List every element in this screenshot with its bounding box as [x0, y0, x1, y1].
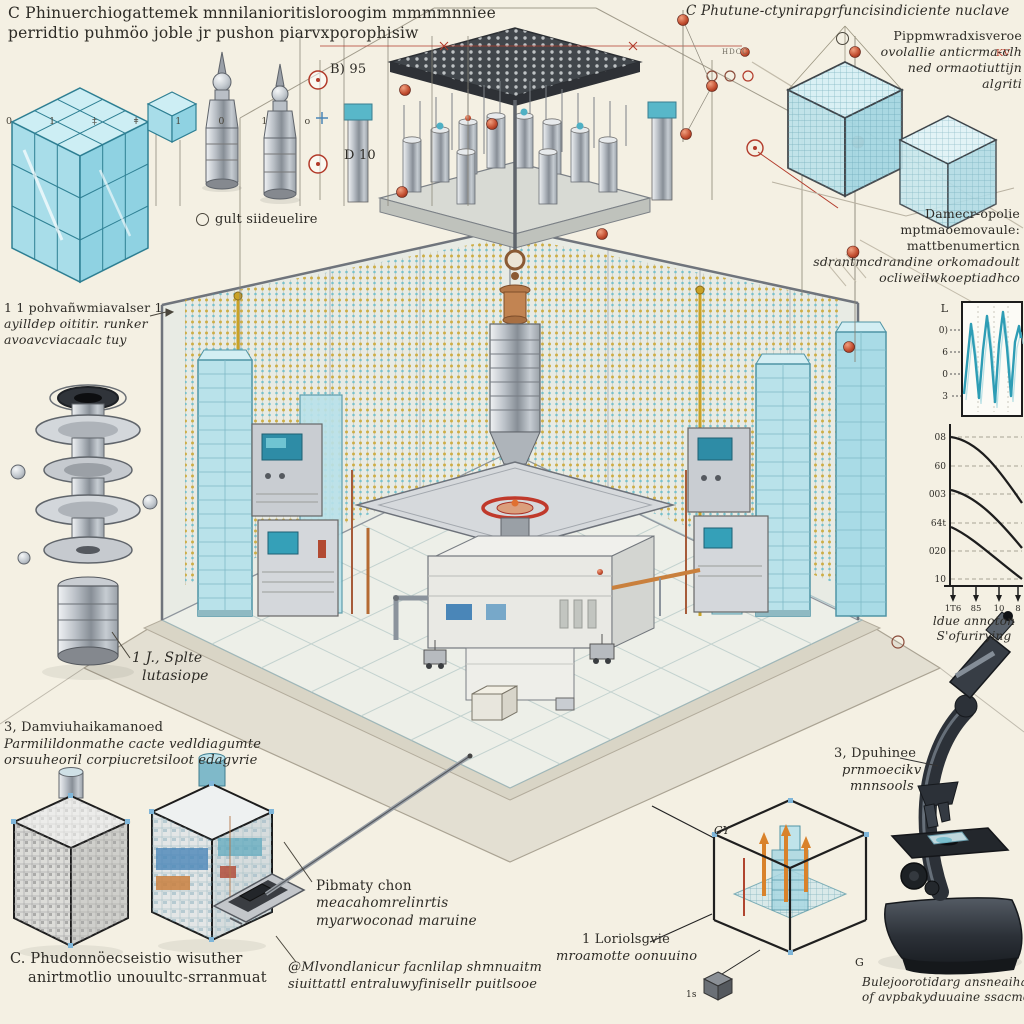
left-mid-caption: 3, Damviuhaikamanoed Parmilildonmathe ca…	[4, 720, 264, 770]
microscope-caption: 3, Dpuhinee prnmoecikv mnnsools	[834, 746, 946, 796]
caption-line: myarwoconad maruine	[316, 913, 506, 930]
cube-corner-label-cy: CY	[714, 824, 730, 838]
mini-cube	[704, 972, 732, 1000]
caption-line: ldue annoton	[924, 614, 1024, 629]
sample-cube-color	[149, 754, 274, 954]
caption-line: Parmilildonmathe cacte vedldiagumte	[4, 737, 264, 754]
cube-corner-label-g: G	[855, 956, 864, 970]
waveform-ytick: 0	[942, 370, 948, 380]
caption-line: 3, Damviuhaikamanoed	[4, 720, 264, 737]
waveform-inset-chart: L 0) 6 0 3	[939, 302, 1023, 416]
decay-ytick: 020	[929, 547, 946, 557]
caption-line: prnmoecikv	[842, 763, 946, 780]
microscope-base	[885, 898, 1022, 963]
waveform-corner-label: L	[941, 302, 949, 315]
decay-curves-chart: 08 60 003 64t 020 10 1T6 85 10 8	[929, 424, 1023, 614]
mini-cube-label: 1s	[686, 990, 697, 1002]
equipment-cabinet	[258, 520, 338, 616]
bottom-right-caption: Bulejoorotidarg ansneaihaw of avpbakyduu…	[862, 975, 1024, 1006]
decay-chart-caption: ldue annoton S'ofurirying	[924, 614, 1024, 645]
caption-line: 3, Dpuhinee	[834, 746, 946, 763]
drill-bit	[260, 64, 300, 204]
ruler-glyph-row: 0 1 ‡ ǂ 1 0 1 o	[6, 116, 327, 128]
decay-curve-2	[951, 490, 1022, 548]
caption-line: algriti	[850, 76, 1022, 92]
top-left-caption: C Phinuerchiogattemek mnnilanioritisloro…	[8, 4, 628, 44]
scale-marker-bottom: D 10	[344, 148, 376, 165]
right-block-caption: Damecr-opolie mptmaoemovaule: mattbenume…	[812, 206, 1020, 286]
scale-marker-top: B) 95	[330, 62, 366, 79]
caption-line: mattbenumerticn	[812, 238, 1020, 254]
sample-cube-gray	[11, 768, 130, 960]
drill-bullet-label: gult siideuelire	[196, 212, 318, 229]
caption-line: ned ormaotiuttijn	[850, 60, 1022, 76]
decay-ytick: 10	[935, 575, 947, 585]
waveform-ytick: 0)	[939, 325, 948, 336]
decay-ytick: 003	[929, 490, 946, 500]
caption-line: @Mlvondlanicur facnlilap shmnuaitm	[288, 960, 568, 977]
caption-line: sdrantmcdrandine orkomadoult	[812, 254, 1020, 270]
caption-line: meacahomrelinrtis	[316, 895, 506, 912]
caption-line: Pippmwradxisveroe	[850, 28, 1022, 44]
supply-crate	[472, 686, 517, 720]
decay-xtick: 8	[1015, 604, 1020, 614]
equipment-cabinet	[252, 424, 322, 516]
caption-line: perridtio puhmöo joble jr pushon piarvxp…	[8, 24, 628, 44]
caption-line: 1 Loriolsgvie	[556, 932, 696, 949]
illustration-canvas: L 0) 6 0 3 08 60 003 64t 020 10 1T6 85	[0, 0, 1024, 1024]
glass-pillar	[836, 322, 886, 616]
bottom-left-caption: C. Phudonnöecseistio wisuther anirtmotli…	[10, 950, 267, 987]
spool-label: 1 J., Splte lutasiope	[132, 650, 232, 686]
top-right-bullet-caption: Pippmwradxisveroe ovolallie anticrma-clh…	[850, 28, 1022, 92]
hdcc-label: HDCC	[722, 48, 748, 57]
label-text: gult siideuelire	[215, 212, 318, 227]
bullet-circle-icon	[836, 32, 849, 45]
caption-line: C Phinuerchiogattemek mnnilanioritisloro…	[8, 4, 628, 24]
modular-caption: @Mlvondlanicur facnlilap shmnuaitm siuit…	[288, 960, 568, 993]
top-right-title: C Phutune-ctynirapgrfuncisindiciente nuc…	[686, 3, 1022, 20]
caption-line: avoavcviacaalc tuy	[4, 332, 179, 348]
caption-line: anirtmotlio unouultc-srranmuat	[28, 969, 267, 988]
reactor-base-housing	[428, 556, 612, 648]
component-spool	[11, 385, 157, 680]
caption-line: mnnsools	[850, 779, 946, 796]
bullet-circle-icon	[196, 213, 209, 226]
decay-xtick: 85	[971, 604, 982, 614]
glass-pillar	[198, 350, 252, 616]
left-panel-caption: 1 1 pohvañwmiavalser 1 ayilldep oititir.…	[4, 300, 179, 348]
caption-line: ocliweilwkoeptiadhco	[812, 270, 1020, 286]
decay-ytick: 60	[935, 462, 947, 472]
equipment-cabinet	[688, 428, 750, 512]
waveform-ytick: 6	[942, 348, 948, 358]
caption-line: Bulejoorotidarg ansneaihaw	[862, 975, 1024, 990]
caption-line: lutasiope	[142, 668, 232, 686]
equipment-cabinet	[694, 516, 768, 612]
decay-ytick: 08	[935, 433, 947, 443]
caption-line: Damecr-opolie	[812, 206, 1020, 222]
decay-xtick: 1T6	[945, 604, 962, 614]
caption-line: siuittattl entraluwyfinisellr puitlsooe	[288, 977, 568, 994]
caption-line: ovolallie anticrma-clh	[850, 44, 1022, 60]
primary-chain-caption: Pibmaty chon meacahomrelinrtis myarwocon…	[316, 878, 506, 930]
lifting-link	[506, 251, 524, 269]
microscope-eyepiece-tube	[950, 636, 1010, 698]
simulation-cube	[650, 798, 869, 1000]
caption-line: 1 J., Splte	[132, 650, 232, 668]
caption-line: orsuuheoril corpiucretsiloot edagvrie	[4, 753, 264, 770]
decay-ytick: 64t	[931, 519, 946, 529]
loriol-caption: 1 Loriolsgvie mroamotte oonuuino	[556, 932, 696, 965]
caption-line: ayilldep oititir. runker	[4, 316, 179, 332]
waveform-ytick: 3	[942, 392, 948, 402]
caption-line: mptmaoemovaule:	[812, 222, 1020, 238]
caption-line: mroamotte oonuuino	[556, 949, 696, 966]
caption-line: 1 1 pohvañwmiavalser 1	[4, 300, 179, 316]
caption-line: C. Phudonnöecseistio wisuther	[10, 950, 267, 969]
caption-line: S'ofurirying	[924, 629, 1024, 644]
caption-line: of avpbakyduuaine ssacmos	[862, 990, 1024, 1005]
caption-line: Pibmaty chon	[316, 878, 506, 895]
